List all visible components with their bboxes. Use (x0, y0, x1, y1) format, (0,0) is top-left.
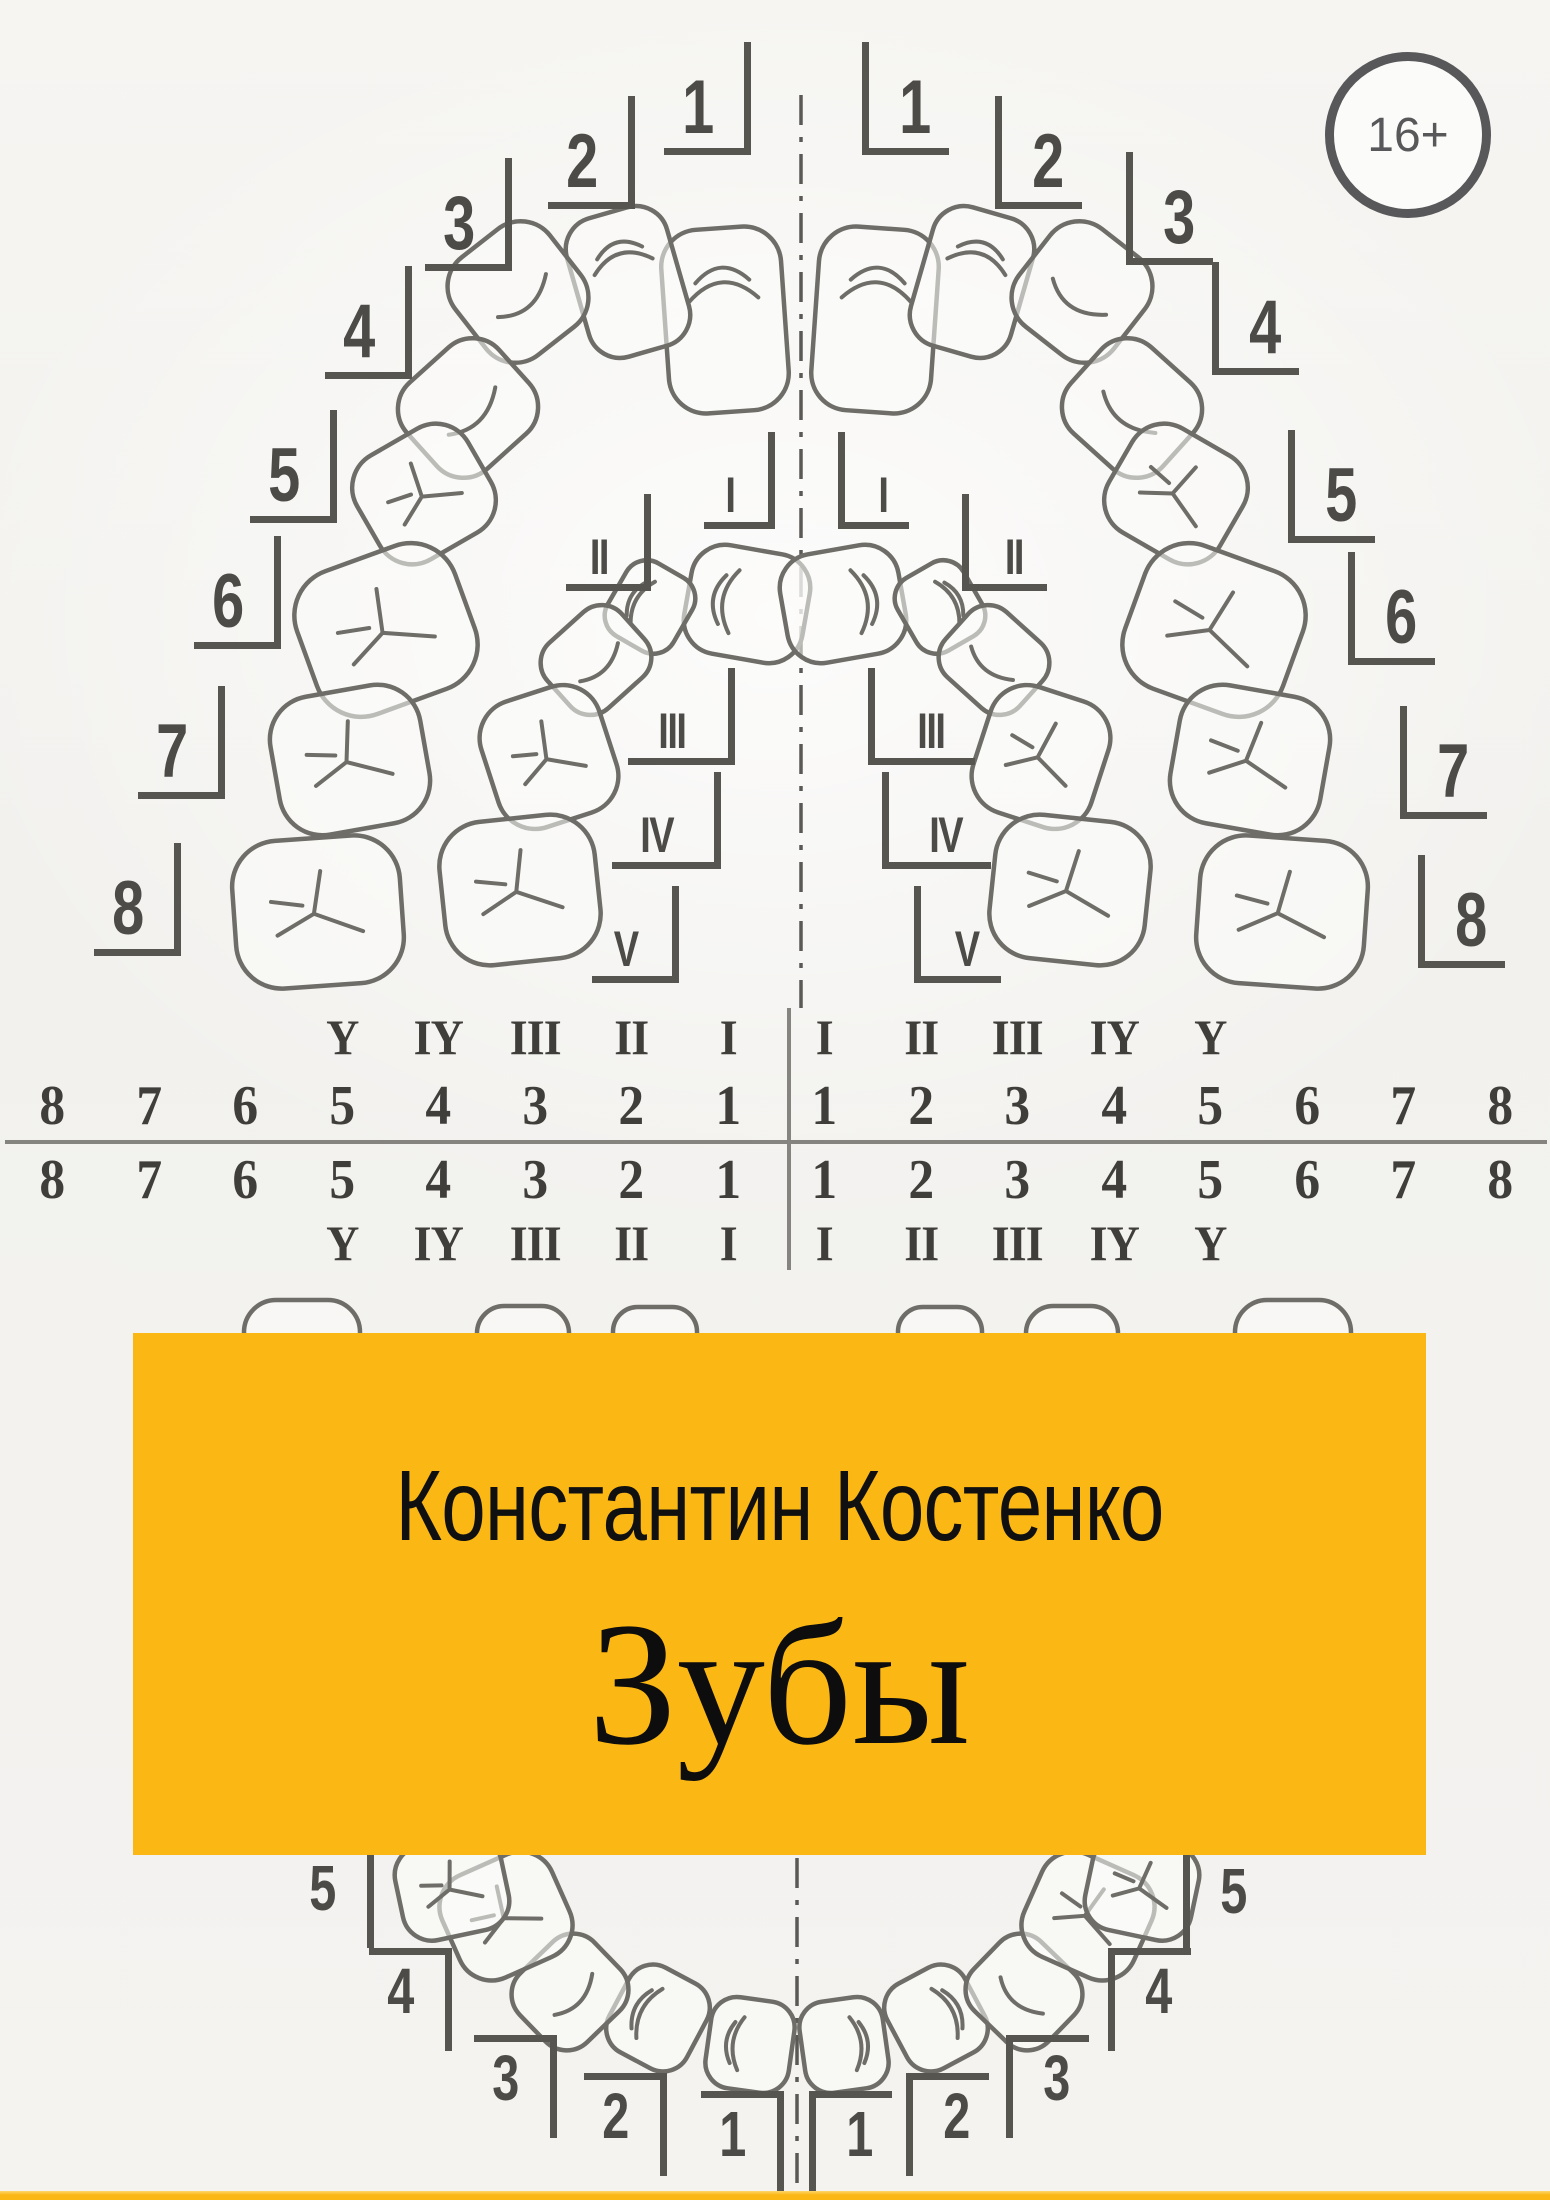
roman-numeral-cell (1359, 1008, 1448, 1068)
roman-numeral-cell (201, 1214, 290, 1274)
tooth-label-text: I (878, 470, 887, 520)
upper-left-tooth-label-8: 8 (94, 843, 181, 956)
tooth-number-cell: 7 (104, 1150, 193, 1210)
tooth-outline (796, 1994, 892, 2097)
roman-numeral-cell (104, 1214, 193, 1274)
tooth-number-cell: 7 (104, 1076, 193, 1136)
tooth-label-text: 1 (899, 70, 931, 146)
tooth-outline (1163, 678, 1337, 842)
upper-left-tooth-label-3: 3 (425, 158, 512, 271)
roman-numeral-cell: III (973, 1214, 1062, 1274)
tooth-label-text: 4 (1145, 1959, 1172, 2023)
table-midline (787, 1008, 791, 1270)
lower-left-tooth-label-1: 1 (701, 2091, 784, 2194)
tooth-number-cell: 4 (1069, 1076, 1158, 1136)
tooth-label-text: 7 (1437, 734, 1469, 810)
upper-left-tooth-label-2: 2 (548, 96, 635, 209)
roman-numeral-cell: II (876, 1008, 965, 1068)
roman-numeral-cell: I (683, 1214, 772, 1274)
roman-numeral-cell: I (683, 1008, 772, 1068)
tooth-label-text: III (658, 706, 685, 756)
roman-numeral-cell (8, 1214, 97, 1274)
deciduous-left-tooth-label-IV: IV (612, 772, 721, 869)
tooth-label-text: 8 (112, 871, 144, 947)
author-name: Константин Костенко (262, 1451, 1296, 1561)
tooth-label-text: 5 (1220, 1859, 1247, 1923)
tooth-number-cell: 5 (297, 1150, 386, 1210)
tooth-label-text: 3 (1163, 180, 1195, 256)
tooth-outline (1193, 832, 1371, 991)
lower-left-tooth-label-4: 4 (369, 1948, 452, 2051)
upper-left-tooth-label-5: 5 (250, 410, 337, 523)
roman-numeral-cell (1359, 1214, 1448, 1274)
tooth-label-text: V (955, 924, 979, 974)
tooth-label-text: 6 (212, 564, 244, 640)
tooth-label-text: 3 (443, 186, 475, 262)
upper-right-tooth-label-1: 1 (862, 42, 949, 155)
tooth-label-text: 1 (682, 70, 714, 146)
roman-numeral-cell: Y (297, 1214, 386, 1274)
roman-numeral-cell: II (587, 1008, 676, 1068)
tooth-outline (702, 1994, 798, 2097)
tooth-number-cell: 4 (394, 1076, 483, 1136)
upper-left-tooth-label-4: 4 (325, 266, 412, 379)
roman-numeral-cell: Y (1166, 1214, 1255, 1274)
tooth-number-cell: 1 (780, 1076, 869, 1136)
upper-right-tooth-label-4: 4 (1212, 262, 1299, 375)
tooth-number-cell: 1 (683, 1076, 772, 1136)
tooth-label-text: 3 (1043, 2046, 1070, 2110)
roman-numeral-cell (104, 1008, 193, 1068)
roman-row-lower: YIYIIIIIIIIIIIIIYY (4, 1214, 1548, 1274)
lower-right-tooth-label-1: 1 (809, 2091, 892, 2194)
tooth-number-cell: 6 (1262, 1076, 1351, 1136)
age-rating-text: 16+ (1367, 108, 1448, 163)
roman-numeral-cell: III (490, 1214, 579, 1274)
tooth-number-cell: 7 (1359, 1076, 1448, 1136)
tooth-label-text: 4 (1249, 290, 1281, 366)
tooth-outline (229, 832, 407, 991)
tooth-number-cell: 4 (1069, 1150, 1158, 1210)
lower-right-tooth-label-5: 5 (1183, 1848, 1266, 1951)
tooth-label-text: 4 (387, 1959, 414, 2023)
tooth-label-text: II (590, 532, 608, 582)
deciduous-right-tooth-label-I: I (838, 432, 909, 529)
tooth-number-cell: 3 (490, 1150, 579, 1210)
tooth-outline (435, 810, 605, 970)
roman-numeral-cell (1455, 1214, 1544, 1274)
lower-left-tooth-label-5: 5 (291, 1845, 374, 1948)
deciduous-right-tooth-label-III: III (868, 668, 975, 765)
age-rating-badge: 16+ (1325, 52, 1491, 218)
tooth-number-cell: 8 (8, 1150, 97, 1210)
tooth-label-text: II (1005, 532, 1023, 582)
roman-numeral-cell (1262, 1214, 1351, 1274)
tooth-label-text: 5 (1325, 458, 1357, 534)
roman-numeral-cell: II (587, 1214, 676, 1274)
table-horizontal-line (5, 1140, 1547, 1144)
tooth-number-cell: 2 (876, 1150, 965, 1210)
tooth-outline (774, 539, 911, 668)
lower-right-tooth-label-2: 2 (906, 2073, 989, 2176)
tooth-label-text: 7 (156, 714, 188, 790)
tooth-label-text: 5 (309, 1856, 336, 1920)
tooth-outline (985, 810, 1155, 970)
deciduous-left-tooth-label-I: I (704, 432, 775, 529)
tooth-number-cell: 5 (1166, 1150, 1255, 1210)
bottom-accent-strip (0, 2191, 1550, 2200)
roman-numeral-cell: Y (1166, 1008, 1255, 1068)
deciduous-right-tooth-label-IV: IV (882, 772, 991, 869)
lower-left-tooth-label-3: 3 (474, 2035, 557, 2138)
upper-left-tooth-label-7: 7 (138, 686, 225, 799)
tooth-label-text: 4 (343, 294, 375, 370)
tooth-label-text: 2 (566, 124, 598, 200)
roman-numeral-cell: II (876, 1214, 965, 1274)
tooth-number-cell: 8 (1455, 1150, 1544, 1210)
tooth-label-text: I (725, 470, 734, 520)
tooth-label-text: 1 (719, 2102, 746, 2166)
tooth-number-cell: 1 (780, 1150, 869, 1210)
roman-numeral-cell: III (490, 1008, 579, 1068)
roman-numeral-cell (201, 1008, 290, 1068)
upper-left-tooth-label-6: 6 (194, 536, 281, 649)
roman-row-upper: YIYIIIIIIIIIIIIIYY (4, 1008, 1548, 1068)
upper-right-tooth-label-7: 7 (1400, 706, 1487, 819)
title-banner: Константин Костенко Зубы (133, 1333, 1426, 1855)
lower-right-tooth-label-4: 4 (1108, 1948, 1191, 2051)
lower-left-tooth-label-2: 2 (584, 2073, 667, 2176)
tooth-number-cell: 7 (1359, 1150, 1448, 1210)
tooth-label-text: 2 (1032, 124, 1064, 200)
tooth-number-cell: 6 (1262, 1150, 1351, 1210)
tooth-outline (263, 678, 437, 842)
deciduous-right-tooth-label-II: II (962, 494, 1047, 591)
book-title: Зубы (133, 1585, 1426, 1785)
tooth-number-cell: 2 (587, 1150, 676, 1210)
tooth-number-cell: 5 (297, 1076, 386, 1136)
tooth-number-cell: 8 (1455, 1076, 1544, 1136)
roman-numeral-cell: IY (394, 1214, 483, 1274)
tooth-number-cell: 4 (394, 1150, 483, 1210)
roman-numeral-cell: Y (297, 1008, 386, 1068)
deciduous-left-tooth-label-III: III (628, 668, 735, 765)
tooth-number-cell: 2 (587, 1076, 676, 1136)
book-cover: 1234567812345678IIIIIIIVVIIIIIIIVV543211… (0, 0, 1550, 2200)
tooth-label-text: 3 (492, 2046, 519, 2110)
tooth-number-cell: 2 (876, 1076, 965, 1136)
roman-numeral-cell: IY (1069, 1214, 1158, 1274)
roman-numeral-cell (1455, 1008, 1544, 1068)
digit-row-lower: 8765432112345678 (4, 1150, 1548, 1210)
roman-numeral-cell: I (780, 1008, 869, 1068)
tooth-number-cell: 6 (201, 1076, 290, 1136)
tooth-number-cell: 3 (490, 1076, 579, 1136)
tooth-label-text: IV (930, 810, 963, 860)
upper-right-tooth-label-2: 2 (995, 96, 1082, 209)
tooth-number-cell: 1 (683, 1150, 772, 1210)
tooth-number-cell: 3 (973, 1076, 1062, 1136)
roman-numeral-cell (1262, 1008, 1351, 1068)
deciduous-left-tooth-label-II: II (566, 494, 651, 591)
tooth-label-text: 1 (846, 2102, 873, 2166)
upper-left-tooth-label-1: 1 (664, 42, 751, 155)
roman-numeral-cell: III (973, 1008, 1062, 1068)
deciduous-right-tooth-label-V: V (914, 886, 1001, 983)
tooth-number-cell: 8 (8, 1076, 97, 1136)
upper-right-tooth-label-5: 5 (1288, 430, 1375, 543)
deciduous-left-tooth-label-V: V (592, 886, 679, 983)
tooth-label-text: 2 (943, 2084, 970, 2148)
roman-numeral-cell (8, 1008, 97, 1068)
tooth-label-text: 6 (1385, 580, 1417, 656)
tooth-number-cell: 3 (973, 1150, 1062, 1210)
tooth-label-text: V (614, 924, 638, 974)
roman-numeral-cell: IY (1069, 1008, 1158, 1068)
tooth-number-cell: 5 (1166, 1076, 1255, 1136)
tooth-label-text: 8 (1455, 883, 1487, 959)
upper-right-tooth-label-6: 6 (1348, 552, 1435, 665)
lower-right-tooth-label-3: 3 (1006, 2035, 1089, 2138)
upper-right-tooth-label-3: 3 (1126, 152, 1213, 265)
tooth-label-text: III (917, 706, 944, 756)
tooth-number-cell: 6 (201, 1150, 290, 1210)
tooth-label-text: 2 (602, 2084, 629, 2148)
roman-numeral-cell: I (780, 1214, 869, 1274)
digit-row-upper: 8765432112345678 (4, 1076, 1548, 1136)
tooth-label-text: IV (641, 810, 674, 860)
tooth-label-text: 5 (268, 438, 300, 514)
roman-numeral-cell: IY (394, 1008, 483, 1068)
upper-right-tooth-label-8: 8 (1418, 855, 1505, 968)
